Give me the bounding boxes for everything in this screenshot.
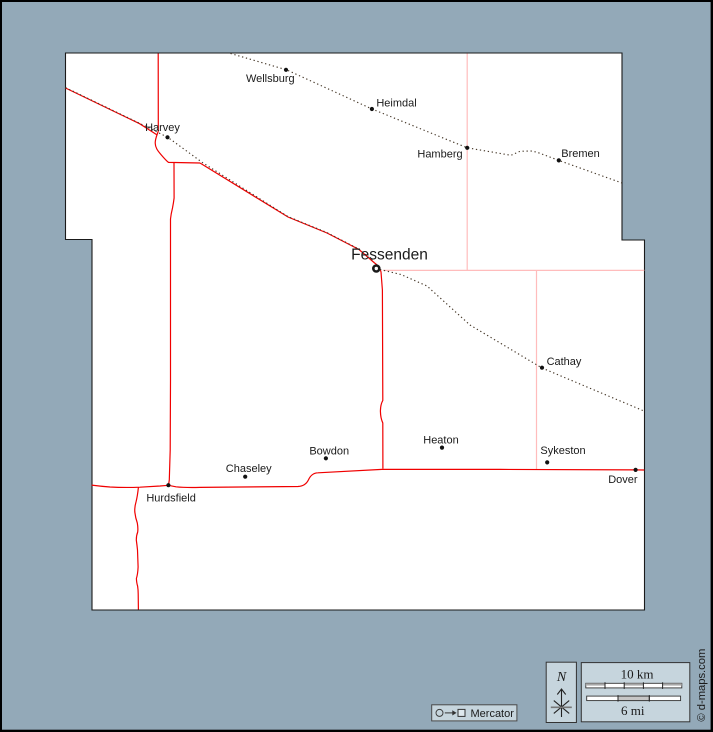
svg-text:Harvey: Harvey [145, 122, 180, 134]
svg-text:Hamberg: Hamberg [417, 149, 462, 161]
svg-text:Heimdal: Heimdal [376, 98, 416, 110]
svg-text:N: N [556, 670, 567, 685]
svg-text:Mercator: Mercator [471, 708, 515, 720]
svg-text:10 km: 10 km [621, 666, 654, 681]
svg-text:Bremen: Bremen [561, 148, 600, 160]
svg-text:Bowdon: Bowdon [309, 446, 349, 458]
svg-text:Chaseley: Chaseley [226, 463, 272, 475]
svg-text:Sykeston: Sykeston [540, 445, 585, 457]
svg-text:Dover: Dover [608, 474, 638, 486]
svg-text:© d-maps.com: © d-maps.com [696, 649, 708, 722]
svg-text:Wellsburg: Wellsburg [246, 73, 295, 85]
svg-text:Fessenden: Fessenden [351, 247, 428, 264]
svg-text:6 mi: 6 mi [621, 703, 645, 718]
svg-text:Cathay: Cathay [547, 356, 582, 368]
svg-text:Heaton: Heaton [423, 435, 458, 447]
svg-text:Hurdsfield: Hurdsfield [146, 492, 196, 504]
